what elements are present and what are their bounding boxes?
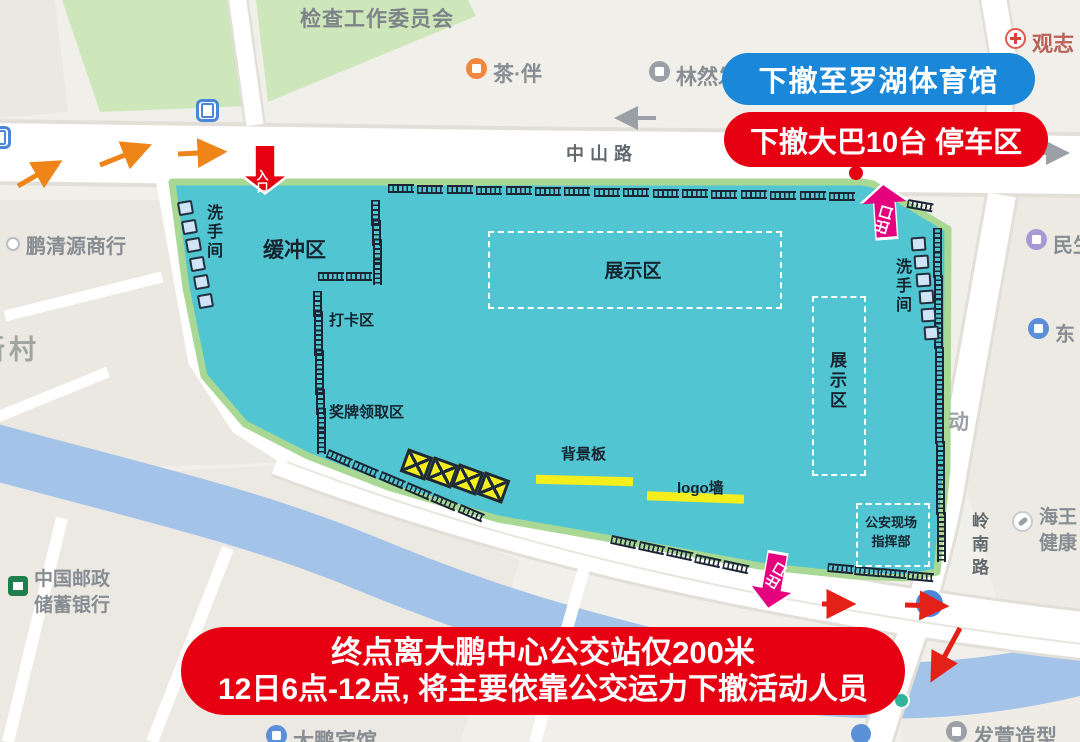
evacuation-map: { "banners": { "retreat_destination": "下…: [0, 0, 1080, 742]
barrier-icon: [907, 571, 934, 582]
buffer-zone-label: 缓冲区: [263, 234, 326, 264]
barrier-icon: [937, 536, 946, 562]
barrier-icon: [722, 560, 749, 574]
exhibition-east-label: 展示区: [824, 351, 849, 411]
entrance-arrow: 入口: [242, 143, 288, 195]
exit-arrow-top: 出口: [858, 180, 912, 241]
toilet-stall-icon: [193, 274, 210, 290]
exhibition-center-label: 展示区: [488, 256, 778, 283]
entrance-label: 入口: [254, 169, 271, 193]
barrier-icon: [325, 449, 352, 467]
toilet-stall-icon: [177, 200, 194, 216]
barrier-icon: [594, 188, 620, 197]
barrier-icon: [352, 460, 379, 478]
barrier-icon: [880, 568, 907, 579]
logo-wall-label: logo墙: [677, 477, 724, 498]
barrier-icon: [935, 418, 944, 444]
barrier-icon: [935, 347, 944, 373]
barrier-icon: [417, 185, 443, 194]
barrier-icon: [506, 186, 532, 195]
toilet-stall-icon: [921, 308, 937, 323]
toilet-stall-icon: [916, 272, 932, 287]
barrier-icon: [476, 186, 502, 195]
police-command-label: 公安现场 指挥部: [856, 514, 926, 552]
bus-parking-dot: [849, 166, 863, 180]
toilet-stall-icon: [197, 292, 214, 308]
barrier-icon: [827, 563, 854, 574]
barrier-icon: [623, 188, 649, 197]
barrier-icon: [933, 252, 942, 278]
barrier-icon: [829, 192, 855, 201]
barrier-icon: [535, 187, 561, 196]
barrier-icon: [936, 489, 945, 515]
barrier-icon: [564, 187, 590, 196]
barrier-icon: [936, 465, 945, 491]
barrier-icon: [682, 189, 708, 198]
bottom-notice-banner: 终点离大鹏中心公交站仅200米 12日6点-12点, 将主要依靠公交运力下撤活动…: [181, 627, 905, 715]
bottom-notice-line2: 12日6点-12点, 将主要依靠公交运力下撤活动人员: [218, 672, 868, 707]
toilet-east-label: 洗手间: [889, 258, 913, 315]
barrier-icon: [854, 566, 881, 577]
toilet-stall-icon: [181, 218, 198, 234]
toilet-west-label: 洗手间: [200, 204, 224, 261]
toilet-stall-icon: [918, 290, 934, 305]
toilet-stall-icon: [913, 254, 929, 269]
barrier-icon: [711, 190, 737, 199]
checkin-zone-label: 打卡区: [329, 309, 374, 330]
barrier-icon: [638, 541, 665, 555]
medal-zone-label: 奖牌领取区: [329, 401, 404, 422]
barrier-icon: [935, 394, 944, 420]
barrier-icon: [404, 482, 431, 500]
toilet-stall-icon: [911, 236, 927, 251]
barrier-icon: [800, 191, 826, 200]
barrier-icon: [447, 185, 473, 194]
barrier-icon: [373, 259, 382, 285]
police-line1: 公安现场: [856, 514, 926, 533]
barrier-icon: [694, 554, 721, 568]
police-line2: 指挥部: [856, 533, 926, 552]
barrier-icon: [346, 272, 372, 281]
toilet-stall-icon: [924, 325, 940, 340]
backdrop-label: 背景板: [561, 443, 606, 464]
barrier-icon: [653, 189, 679, 198]
barrier-icon: [936, 441, 945, 467]
barrier-icon: [388, 184, 414, 193]
barrier-icon: [610, 535, 637, 549]
barrier-icon: [933, 228, 942, 254]
barrier-icon: [741, 190, 767, 199]
barrier-icon: [906, 199, 933, 212]
barrier-icon: [935, 370, 944, 396]
barrier-icon: [666, 547, 693, 561]
barrier-icon: [431, 493, 458, 511]
bottom-notice-line1: 终点离大鹏中心公交站仅200米: [331, 635, 755, 672]
barrier-icon: [934, 275, 943, 301]
barrier-icon: [318, 272, 344, 281]
barrier-icon: [937, 512, 946, 538]
retreat-destination-banner: 下撤至罗湖体育馆: [722, 53, 1035, 105]
barrier-icon: [378, 471, 405, 489]
barrier-icon: [317, 428, 326, 454]
retreat-bus-banner: 下撤大巴10台 停车区: [724, 112, 1048, 167]
barrier-icon: [770, 191, 796, 200]
barrier-icon: [457, 504, 484, 522]
